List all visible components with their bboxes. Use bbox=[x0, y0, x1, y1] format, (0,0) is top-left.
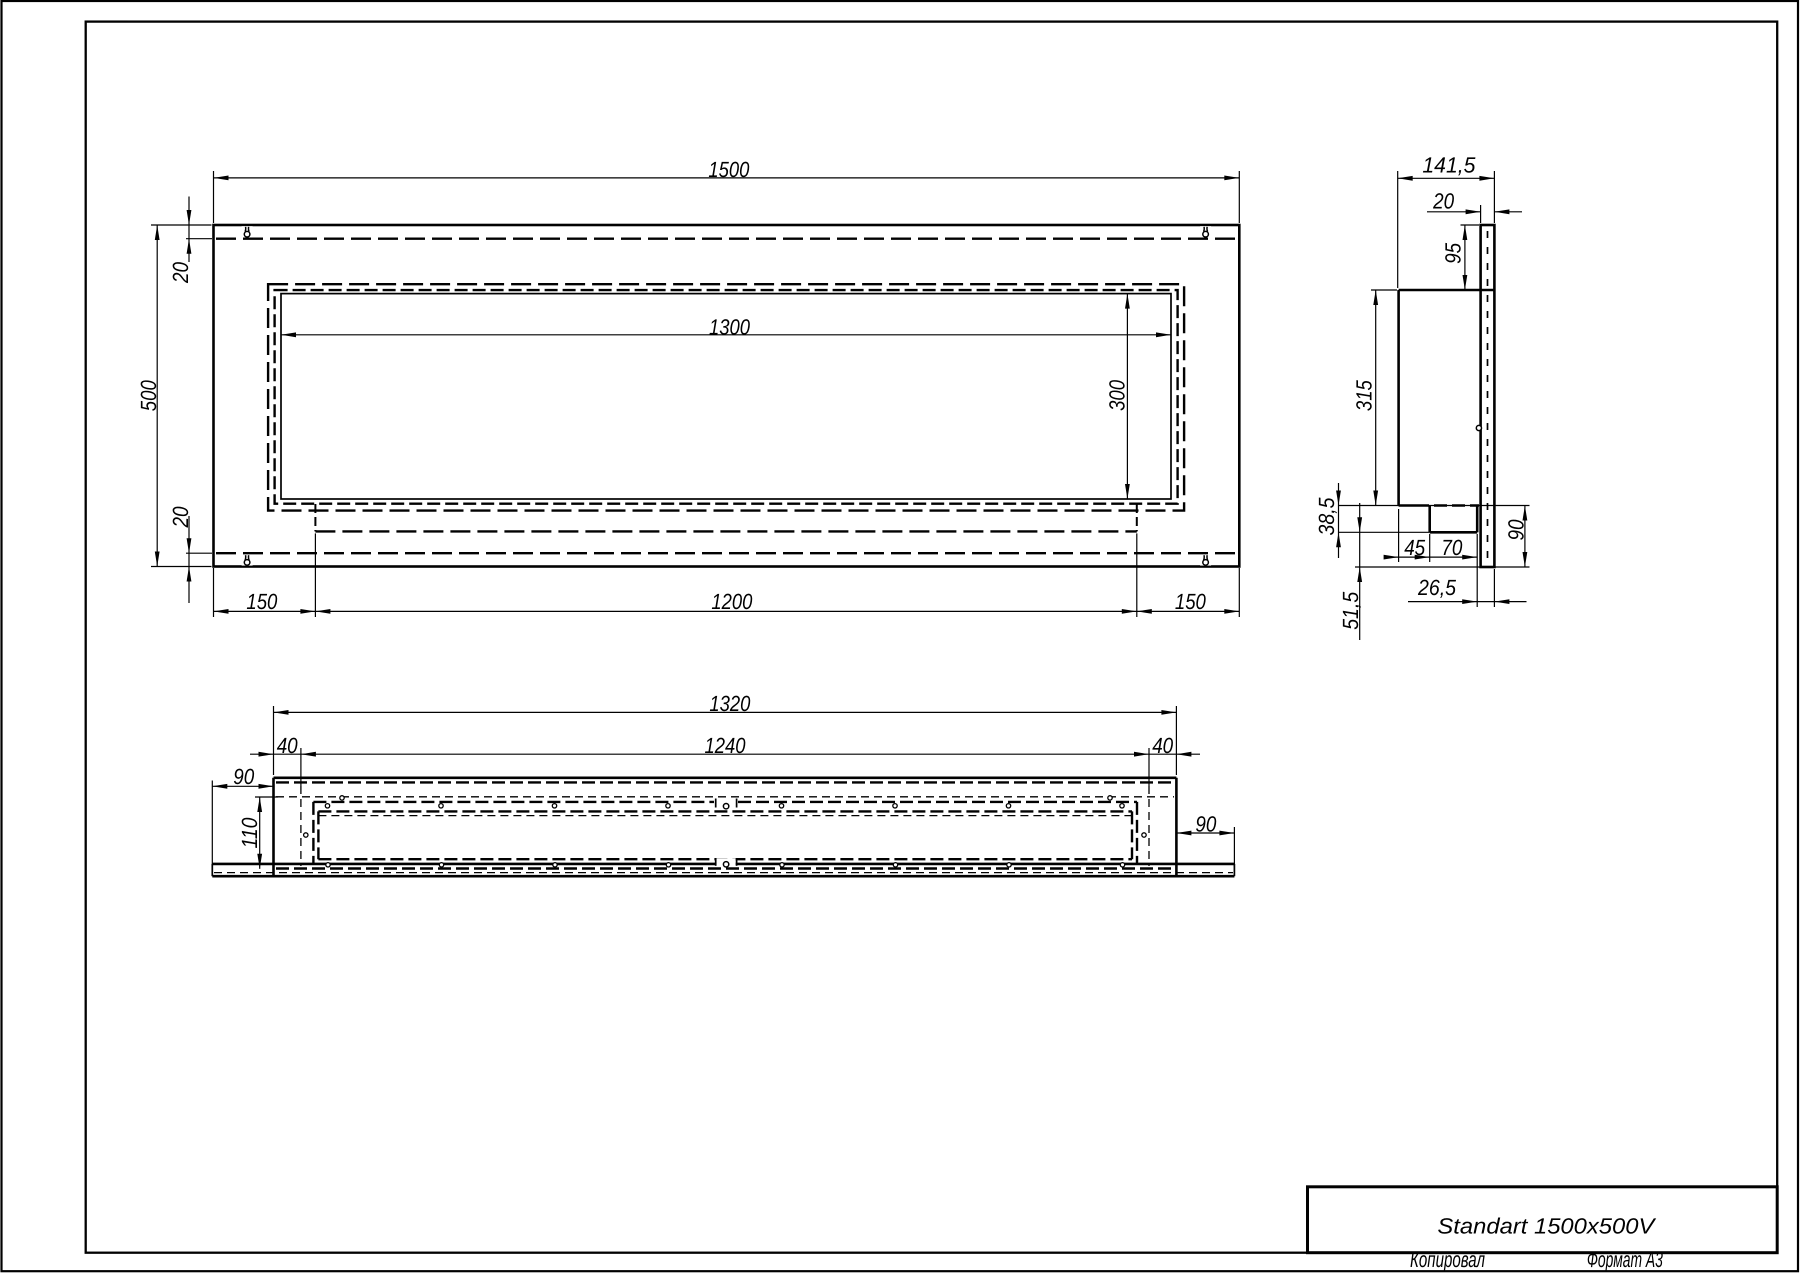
svg-text:38,5: 38,5 bbox=[1314, 497, 1339, 536]
svg-text:40: 40 bbox=[277, 733, 299, 758]
svg-text:150: 150 bbox=[246, 589, 278, 614]
svg-text:95: 95 bbox=[1440, 242, 1465, 264]
svg-text:141,5: 141,5 bbox=[1422, 152, 1476, 177]
svg-text:20: 20 bbox=[1432, 188, 1455, 213]
svg-text:40: 40 bbox=[1152, 733, 1174, 758]
svg-text:1320: 1320 bbox=[709, 691, 751, 716]
svg-text:70: 70 bbox=[1441, 535, 1463, 560]
svg-text:315: 315 bbox=[1352, 379, 1377, 411]
svg-text:90: 90 bbox=[1195, 811, 1217, 836]
svg-text:90: 90 bbox=[1503, 519, 1528, 541]
svg-text:1240: 1240 bbox=[705, 733, 747, 758]
svg-text:110: 110 bbox=[237, 817, 262, 849]
svg-text:1300: 1300 bbox=[709, 314, 751, 339]
svg-text:20: 20 bbox=[168, 261, 193, 284]
svg-text:51,5: 51,5 bbox=[1338, 591, 1363, 630]
svg-text:Копировал: Копировал bbox=[1410, 1247, 1485, 1272]
svg-text:1200: 1200 bbox=[711, 589, 753, 614]
svg-text:1500: 1500 bbox=[708, 157, 750, 182]
svg-text:Формат А3: Формат А3 bbox=[1587, 1247, 1663, 1272]
svg-text:Standart 1500x500V: Standart 1500x500V bbox=[1437, 1214, 1657, 1239]
svg-text:300: 300 bbox=[1105, 379, 1130, 411]
svg-text:150: 150 bbox=[1175, 589, 1207, 614]
svg-text:26,5: 26,5 bbox=[1417, 575, 1457, 600]
svg-text:45: 45 bbox=[1404, 535, 1426, 560]
svg-text:20: 20 bbox=[168, 506, 193, 529]
svg-text:500: 500 bbox=[136, 380, 161, 412]
svg-text:90: 90 bbox=[233, 764, 255, 789]
